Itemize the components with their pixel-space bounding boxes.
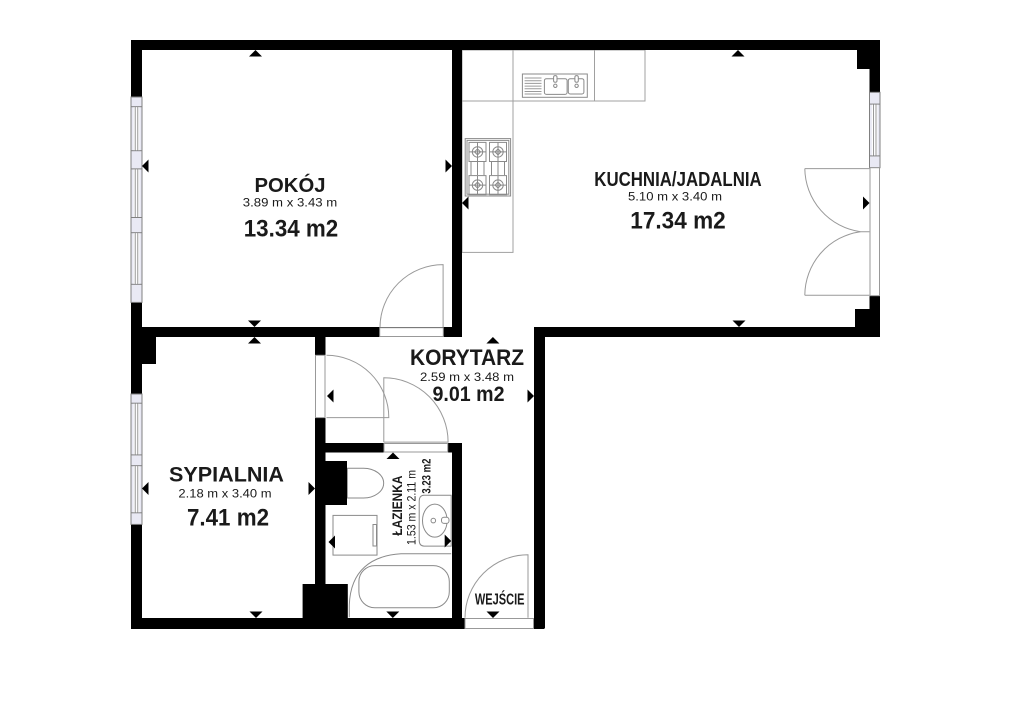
svg-text:17.34 m2: 17.34 m2 <box>630 208 725 235</box>
svg-text:13.34 m2: 13.34 m2 <box>244 216 339 243</box>
svg-text:SYPIALNIA: SYPIALNIA <box>169 463 284 487</box>
svg-text:1.53 m x 2.11 m: 1.53 m x 2.11 m <box>407 470 419 545</box>
svg-text:ŁAZIENKA: ŁAZIENKA <box>390 475 405 535</box>
svg-text:7.41 m2: 7.41 m2 <box>187 505 269 532</box>
svg-text:KORYTARZ: KORYTARZ <box>410 345 524 370</box>
svg-text:POKÓJ: POKÓJ <box>255 173 326 197</box>
svg-text:5.10 m x 3.40 m: 5.10 m x 3.40 m <box>628 190 722 204</box>
svg-text:3.89 m x 3.43 m: 3.89 m x 3.43 m <box>243 196 338 210</box>
svg-text:9.01 m2: 9.01 m2 <box>433 383 505 406</box>
svg-text:WEJŚCIE: WEJŚCIE <box>475 591 525 609</box>
svg-text:2.18 m x 3.40 m: 2.18 m x 3.40 m <box>178 487 271 501</box>
svg-text:3.23 m2: 3.23 m2 <box>422 459 434 494</box>
svg-text:KUCHNIA/JADALNIA: KUCHNIA/JADALNIA <box>594 169 761 191</box>
